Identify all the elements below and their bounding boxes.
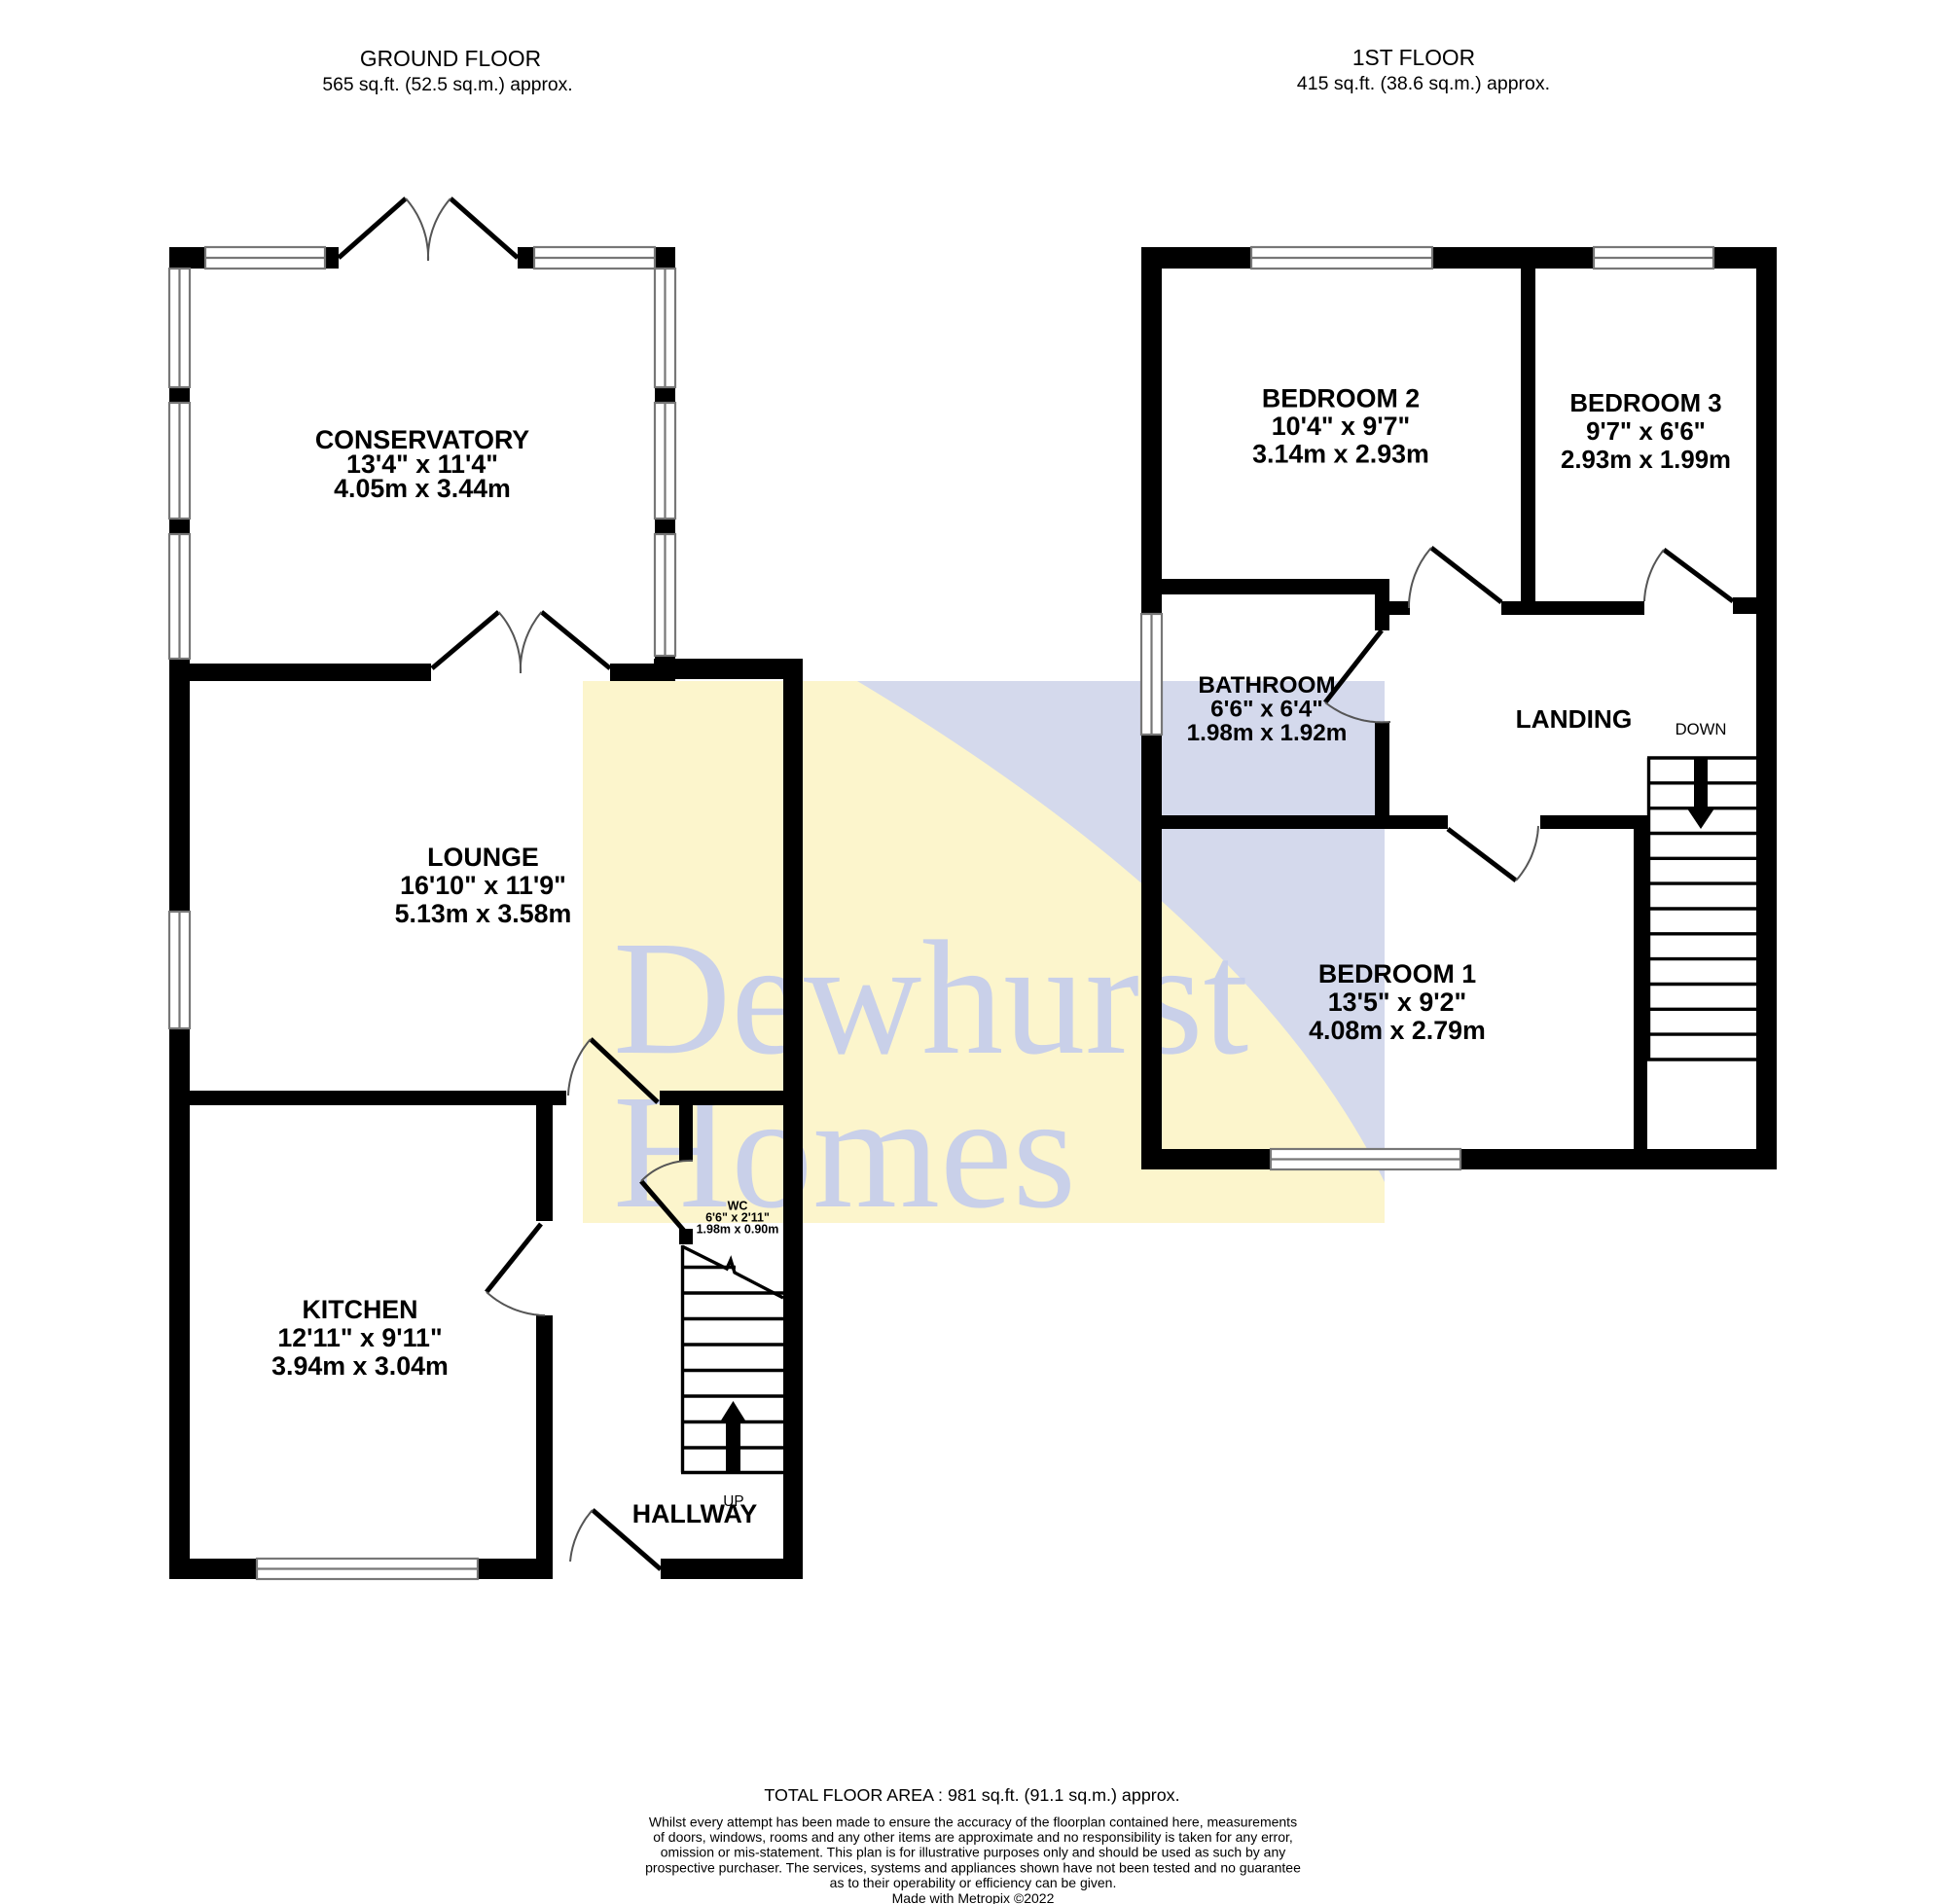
svg-text:9'7" x 6'6": 9'7" x 6'6" bbox=[1586, 418, 1706, 446]
svg-text:DOWN: DOWN bbox=[1676, 720, 1727, 738]
svg-text:as to their operability or eff: as to their operability or efficiency ca… bbox=[830, 1875, 1117, 1890]
svg-text:UP: UP bbox=[723, 1493, 743, 1510]
svg-text:TOTAL FLOOR AREA : 981 sq.ft.: TOTAL FLOOR AREA : 981 sq.ft. (91.1 sq.m… bbox=[764, 1785, 1179, 1805]
svg-text:BEDROOM 3: BEDROOM 3 bbox=[1569, 390, 1721, 417]
svg-text:of doors, windows, rooms and a: of doors, windows, rooms and any other i… bbox=[653, 1829, 1293, 1845]
svg-text:1.98m x 1.92m: 1.98m x 1.92m bbox=[1187, 720, 1348, 746]
svg-text:1ST FLOOR: 1ST FLOOR bbox=[1352, 45, 1475, 70]
svg-text:LANDING: LANDING bbox=[1516, 704, 1633, 734]
svg-text:1.98m x 0.90m: 1.98m x 0.90m bbox=[697, 1223, 779, 1237]
svg-text:BATHROOM: BATHROOM bbox=[1198, 672, 1335, 699]
svg-text:BEDROOM 1: BEDROOM 1 bbox=[1318, 959, 1476, 988]
svg-text:415 sq.ft. (38.6 sq.m.) approx: 415 sq.ft. (38.6 sq.m.) approx. bbox=[1297, 73, 1550, 94]
svg-text:3.14m x 2.93m: 3.14m x 2.93m bbox=[1252, 440, 1429, 469]
svg-text:6'6" x 6'4": 6'6" x 6'4" bbox=[1210, 697, 1323, 723]
svg-text:16'10" x 11'9": 16'10" x 11'9" bbox=[400, 871, 566, 900]
svg-text:3.94m x 3.04m: 3.94m x 3.04m bbox=[271, 1351, 449, 1381]
svg-text:KITCHEN: KITCHEN bbox=[302, 1295, 417, 1324]
svg-text:LOUNGE: LOUNGE bbox=[427, 843, 539, 872]
svg-text:omission or mis-statement. Thi: omission or mis-statement. This plan is … bbox=[661, 1845, 1286, 1860]
svg-text:2.93m x 1.99m: 2.93m x 1.99m bbox=[1561, 447, 1731, 474]
svg-text:10'4" x 9'7": 10'4" x 9'7" bbox=[1272, 412, 1410, 441]
svg-text:4.05m x 3.44m: 4.05m x 3.44m bbox=[334, 474, 511, 503]
svg-text:GROUND FLOOR: GROUND FLOOR bbox=[360, 46, 541, 71]
svg-text:5.13m x 3.58m: 5.13m x 3.58m bbox=[395, 899, 572, 928]
svg-text:565 sq.ft. (52.5 sq.m.) approx: 565 sq.ft. (52.5 sq.m.) approx. bbox=[322, 75, 572, 95]
svg-text:13'5" x 9'2": 13'5" x 9'2" bbox=[1328, 988, 1466, 1017]
svg-text:BEDROOM 2: BEDROOM 2 bbox=[1262, 384, 1420, 413]
svg-text:12'11" x 9'11": 12'11" x 9'11" bbox=[277, 1323, 442, 1352]
svg-text:4.08m x 2.79m: 4.08m x 2.79m bbox=[1309, 1016, 1486, 1045]
svg-text:Whilst every attempt has been: Whilst every attempt has been made to en… bbox=[649, 1814, 1297, 1829]
svg-text:prospective purchaser. The ser: prospective purchaser. The services, sys… bbox=[645, 1859, 1301, 1875]
svg-text:Made with Metropix ©2022: Made with Metropix ©2022 bbox=[892, 1890, 1055, 1904]
